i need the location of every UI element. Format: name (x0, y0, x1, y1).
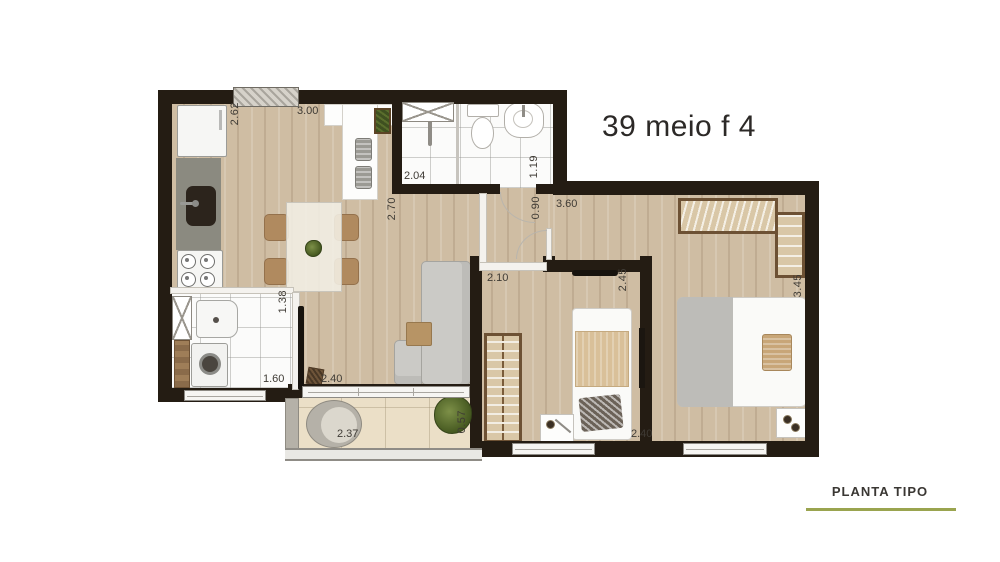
bedroom2-throw-blanket (578, 394, 623, 432)
stove-burner (181, 272, 196, 287)
desk-chair (355, 138, 372, 161)
dim-master-depth: 3.45 (792, 274, 806, 297)
stove-burner (181, 254, 196, 269)
accent-rule (806, 508, 956, 511)
bathroom-divider (456, 104, 459, 184)
master-nightstand (776, 408, 806, 438)
master-wardrobe (678, 198, 778, 234)
master-wardrobe-shelves (775, 212, 805, 278)
wall-bedroom2-left (470, 256, 482, 452)
master-bed-drape (677, 297, 733, 407)
dim-hall-width: 0.90 (530, 196, 544, 219)
wall-bathroom-bottom-b (536, 184, 553, 194)
balcony-sliding-door (302, 386, 470, 398)
toilet-tank (467, 104, 499, 117)
bedroom2-nightstand (540, 414, 574, 442)
dim-balcony-width: 2.37 (337, 428, 358, 440)
dim-bathroom-depth: 1.19 (528, 155, 542, 178)
laundry-tank-icon (196, 300, 238, 338)
dim-service-width: 1.60 (263, 373, 284, 385)
fridge-icon (177, 105, 227, 157)
wall-left (158, 90, 172, 402)
decor-knob (783, 415, 792, 424)
dim-kitchen-depth: 2.70 (386, 197, 400, 220)
window-pane-line (515, 449, 591, 450)
dim-master-bottom-width: 2.40 (631, 428, 652, 440)
washer-icon (191, 343, 228, 387)
laundry-shelf (174, 340, 190, 388)
lamp-arm (555, 419, 572, 433)
wall-right (805, 181, 819, 457)
window-pane-line (187, 396, 262, 397)
bathroom-window (402, 102, 454, 122)
plan-type-label: PLANTA TIPO (800, 484, 960, 499)
counter-plant-icon (374, 108, 391, 134)
window-pane-divider (358, 388, 359, 396)
bedroom2-tv-panel (572, 270, 618, 276)
partition-laundry-top (170, 287, 294, 294)
master-cushion (762, 334, 792, 371)
floor-plan-canvas: 39 meio f 4 PLANTA TIPO (0, 0, 1000, 562)
sofa-chaise (394, 340, 422, 385)
lamp-icon (546, 420, 555, 429)
tank-drain (213, 317, 219, 323)
dim-bedroom2-depth: 2.45 (617, 268, 631, 291)
window-pane-line (308, 392, 464, 393)
balcony-glass-rail (285, 448, 482, 461)
sofa-ottoman (406, 322, 432, 346)
dim-living-width: 2.40 (321, 373, 342, 385)
bedroom2-wardrobe (484, 333, 522, 443)
decor-knob (791, 423, 800, 432)
tap-icon (522, 105, 525, 117)
wall-bathroom-left (392, 102, 402, 188)
dim-service-depth: 1.38 (277, 290, 291, 313)
washer-door (199, 353, 221, 375)
master-window (683, 443, 767, 455)
bathroom-sink-icon (504, 102, 544, 138)
wall-bedroom-block-top (553, 181, 819, 195)
fridge-handle (219, 110, 222, 130)
balcony-chair-icon (306, 400, 362, 448)
balcony-side-wall (285, 398, 299, 452)
desk-chair (355, 166, 372, 189)
bedroom2-blanket (575, 331, 629, 387)
laundry-side-window (172, 296, 192, 340)
wall-bathroom-right (553, 90, 567, 193)
wall-top (158, 90, 567, 104)
dim-master-width: 3.60 (556, 198, 577, 210)
partition-hall-living (479, 193, 487, 265)
dim-kitchen-width: 3.00 (297, 105, 318, 117)
tv-panel (298, 306, 304, 390)
stove-icon (177, 250, 223, 290)
stove-burner (200, 254, 215, 269)
partition-bedroom2-top (479, 262, 547, 271)
master-door-leaf (639, 328, 645, 388)
kitchen-sink-icon (186, 186, 216, 226)
toilet-icon (466, 104, 500, 154)
dim-bathroom-width: 2.04 (404, 170, 425, 182)
bedroom2-window (512, 443, 595, 455)
plan-title: 39 meio f 4 (602, 110, 756, 144)
stove-burner (200, 272, 215, 287)
dim-balcony-depth: 0.57 (456, 410, 470, 433)
dim-bedroom2-width: 2.10 (487, 272, 508, 284)
toilet-bowl (471, 117, 494, 149)
laundry-window (184, 390, 266, 401)
faucet-base (192, 200, 199, 207)
window-pane-line (686, 449, 763, 450)
dim-kitchen-height: 2.62 (229, 102, 243, 125)
window-pane-divider (413, 388, 414, 396)
